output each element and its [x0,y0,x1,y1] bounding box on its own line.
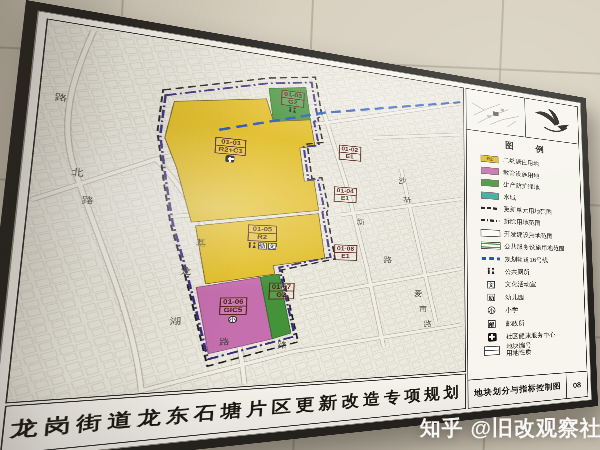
health-center-icon [488,333,497,342]
legend-item-label: 教育设施用地 [503,169,539,178]
water-swatch [481,191,499,200]
plot-label-01-03: 01-03G2 [280,90,305,115]
road-name-char: 爱 [414,289,422,299]
side-panel: 图 例 R2二类居住用地教育设施用地生产防护绿地水域更新单元用地范围拆除用地范围… [466,88,589,409]
compass-cell [525,98,579,143]
legend-item-label: 邮政所 [506,320,525,327]
facility-icon: 小 [228,316,238,324]
plot-code: 01-06 [219,297,247,306]
legend-item: 公共厕所 [469,265,582,279]
plot-use-code: E1 [334,252,357,261]
compass-logo-icon [532,105,571,138]
facility-icon: 文 [268,242,277,249]
culture-room-icon: 文 [482,280,501,288]
plot-use-code: G2 [268,290,294,299]
legend-item-label: 开发建设用地范围 [504,231,553,239]
facility-icon: 邮 [488,320,496,328]
legend-items: R2二类居住用地教育设施用地生产防护绿地水域更新单元用地范围拆除用地范围开发建设… [468,150,584,358]
plot-facility-icons: 小 [218,315,246,323]
road-name-char: 沙 [399,176,407,187]
green-space-swatch [481,179,499,188]
unit-boundary-line [481,203,499,212]
facility-icon: 小 [488,307,496,315]
road-name-char: 路 [277,339,287,351]
plot-label-01-01: 01-01R2+C1 [214,137,246,164]
plot-label-01-07: 01-07G2 [268,282,294,299]
road-name-char: 路 [81,194,94,207]
kindergarten-icon: 幼 [482,293,501,301]
legend-item-label: 公共厕所 [505,269,530,276]
legend-item-label: 水域 [503,194,515,201]
legend-panel: 图 例 R2二类居住用地教育设施用地生产防护绿地水域更新单元用地范围拆除用地范围… [467,130,587,380]
public-toilet-icon [247,242,257,249]
legend-item-label: 公共服务设施用地范围 [504,243,564,251]
health-center-icon [226,155,235,163]
road-name-char: 路 [424,319,432,330]
demolition-boundary-line [481,216,499,225]
road-name-char: 基 [196,237,207,249]
residential-swatch: R2 [481,154,499,163]
road-name-char: 南 [419,304,427,315]
map-panel: 路北路基龙湖路路沙荷新路爱南路 01-01R2+C101-02E101-03G2… [5,18,466,403]
development-land-box [481,229,499,238]
plot-number-box [483,346,502,355]
public-service-land-box [481,241,499,250]
education-swatch [481,167,499,176]
legend-item-label: 更新单元用地范围 [504,206,552,215]
legend-item-label: 幼儿园 [505,294,524,300]
legend-item-label: 规划轨道16号线 [504,256,548,263]
road-name-char: 新 [356,217,365,228]
public-toilet-icon [482,267,501,275]
watermark: 知乎 @旧改观察社 [420,414,600,442]
plot-use-code: GIC5 [219,305,247,315]
plot-label-01-08: 01-08E1 [334,244,357,260]
road-name-char: 路 [219,336,230,349]
legend-item-label: 地块编号 用地性质 [506,342,532,356]
road-name-char: 龙 [180,265,192,277]
health-center-icon [482,332,501,341]
legend-item-label: 二类居住用地 [503,157,539,167]
plot-label-01-05: 01-05R2幼文 [247,224,277,249]
plot-facility-icons [214,154,246,164]
facility-icon: 幼 [487,294,495,302]
legend-item-label: 社区健康服务中心 [506,331,556,339]
public-toilet-icon [288,107,297,114]
plot-facility-icons: 幼文 [247,242,277,250]
sheet-label: 地块划分与指标控制图 [468,373,566,408]
plot-label-01-02: 01-02E1 [338,144,361,161]
road-name-char: 路 [54,91,68,105]
location-inset-map [466,89,525,137]
facility-icon: 幼 [258,242,267,249]
plot-label-01-06: 01-06GIC5小 [218,297,247,323]
road-name-char: 荷 [403,196,411,206]
legend-item: 文文化活动室 [469,278,582,291]
plot-labels-layer: 01-01R2+C101-02E101-03G201-04E101-05R2幼文… [7,19,465,402]
legend-item-label: 生产防护绿地 [503,181,539,190]
legend-item-label: 小学 [505,307,518,314]
facility-icon: 文 [487,281,495,288]
plot-code: 01-07 [268,282,294,291]
plot-code: 01-08 [334,244,357,253]
rail-line-16 [482,254,500,263]
plot-label-01-04: 01-04E1 [333,187,356,204]
plot-use-code: R2 [247,232,277,242]
road-name-char: 湖 [169,316,181,329]
inset-map-graphic [470,94,521,131]
sheet-number: 08 [566,372,588,399]
post-office-icon: 邮 [482,319,501,328]
legend-item-label: 文化活动室 [505,281,536,287]
road-name-char: 北 [71,166,85,179]
road-name-char: 路 [384,255,392,266]
photo-scene: 路北路基龙湖路路沙荷新路爱南路 01-01R2+C101-02E101-03G2… [0,0,600,450]
legend-item-label: 拆除用地范围 [504,218,541,226]
primary-school-icon: 小 [482,306,501,315]
